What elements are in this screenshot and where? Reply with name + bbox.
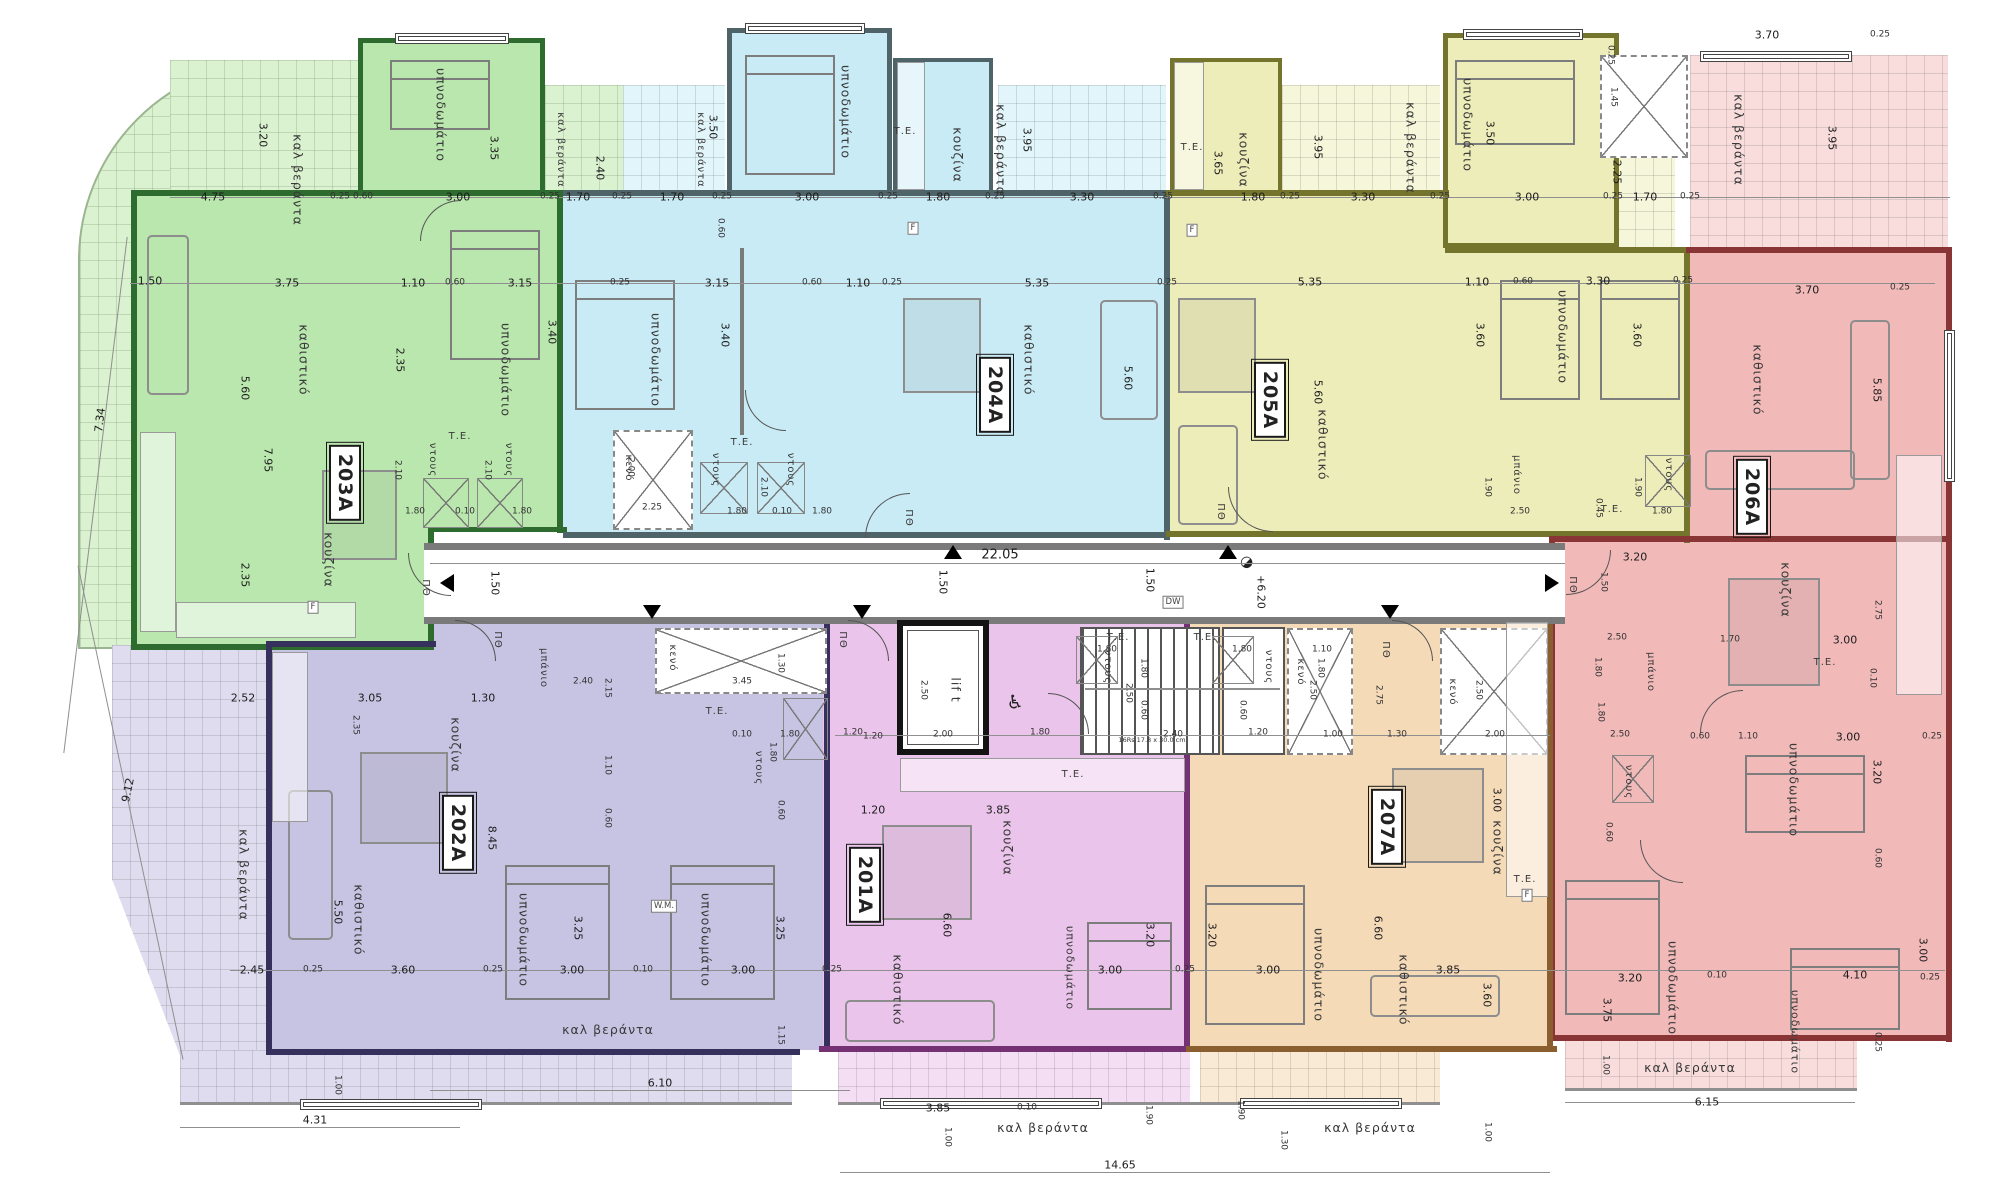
- dimension-label: 2.50: [1124, 683, 1133, 703]
- dimension-label: 0.25: [878, 193, 898, 202]
- room-label: Τ.Ε.: [894, 127, 917, 137]
- room-label: υπνοδωμάτιο: [1790, 990, 1801, 1074]
- dimension-label: 2.35: [240, 563, 251, 588]
- dimension-label: 2.50: [919, 680, 928, 700]
- dimension-label: 3.00: [1098, 965, 1123, 976]
- room-label: υπνοδωμάτιο: [1065, 926, 1076, 1010]
- arrow-down-icon: [1381, 605, 1399, 619]
- dimension-label: 0.60: [1513, 278, 1533, 287]
- dimension-label: 0.25: [882, 279, 902, 288]
- dimension-label: 2.75: [1374, 685, 1383, 705]
- dimension-label: 0.60: [603, 808, 612, 828]
- window: [880, 1098, 1102, 1109]
- dimension-label: 0.25: [1890, 284, 1910, 293]
- room-label: καθιστικό: [1397, 954, 1410, 1025]
- dimension-label: 1.10: [401, 278, 426, 289]
- dimension-label: 1.50: [490, 571, 501, 596]
- dimension-label: 3.00: [446, 192, 471, 203]
- dimension-label: 5.35: [1298, 277, 1323, 288]
- arrow-up-icon: [1219, 545, 1237, 559]
- dimension-label: 3.60: [1475, 323, 1486, 348]
- dimension-label: 1.30: [1387, 731, 1407, 740]
- dimension-label: 3.95: [1313, 135, 1324, 160]
- veranda-207a: [1200, 1050, 1440, 1105]
- dimension-label: 3.20: [1623, 552, 1648, 563]
- room-label: καλ βεράντα: [1732, 94, 1745, 186]
- dimension-label: 1.30: [1279, 1130, 1288, 1150]
- dimension-label: 2.45: [240, 965, 265, 976]
- sofa: [845, 1000, 995, 1042]
- dining-table: [882, 825, 972, 920]
- room-label: κουζίνα: [1779, 562, 1792, 618]
- veranda-201a: [838, 1050, 1190, 1105]
- room-label: καλ βεράντα: [237, 829, 250, 921]
- dimension-label: 0.60: [353, 193, 373, 202]
- kitchen-counter: [140, 432, 176, 632]
- room-label: ΠΘ: [1567, 576, 1577, 593]
- dimension-label: 2.00: [626, 457, 635, 477]
- dimension-label: 1.90: [1483, 477, 1492, 497]
- room-label: υπνοδωμάτιο: [1666, 941, 1679, 1035]
- dimension-label: 4.10: [1843, 970, 1868, 981]
- dimension-label: 0.60: [776, 800, 785, 820]
- room-label: Τ.Ε.: [1601, 505, 1624, 515]
- arrow-down-icon: [643, 605, 661, 619]
- dimension-label: 2.35: [395, 348, 406, 373]
- room-label: ντους: [1623, 765, 1633, 799]
- dimension-label: 1.30: [776, 653, 785, 673]
- dimension-label: 2.50: [1308, 680, 1317, 700]
- room-label: υπνοδωμάτιο: [1787, 743, 1800, 837]
- room-label: ντους: [785, 453, 795, 487]
- dimension-label: 3.30: [1586, 276, 1611, 287]
- dimension-label: 1.80: [1241, 192, 1266, 203]
- window: [745, 23, 865, 34]
- dimension-label: 3.70: [1755, 30, 1780, 41]
- bed: [1205, 885, 1305, 1025]
- dimension-label: 2.15: [603, 678, 612, 698]
- dimension-label: 2.00: [1485, 731, 1505, 740]
- bed: [1565, 880, 1660, 1015]
- dimension-label: 1.80: [780, 731, 800, 740]
- dimension-label: 2.40: [1163, 731, 1183, 740]
- dimension-label: 0.25: [1920, 974, 1940, 983]
- dimension-label: 1.10: [1312, 646, 1332, 655]
- dimension-label: 5.50: [333, 900, 344, 925]
- dimension-label: 1.80: [812, 508, 832, 517]
- dimension-label: 1.80: [1652, 508, 1672, 517]
- bed: [670, 865, 775, 1000]
- dimension-label: 1.80: [1030, 729, 1050, 738]
- dimension-label: 1.10: [1465, 277, 1490, 288]
- dimension-label: 1.00: [333, 1075, 342, 1095]
- veranda-206a-top: [1690, 55, 1948, 248]
- dimension-label: 0.25: [1873, 1032, 1882, 1052]
- dimension-label: 1.20: [863, 733, 883, 742]
- dimension-label: 1.10: [603, 755, 612, 775]
- room-label: ντους: [503, 443, 513, 477]
- fridge-mark: F: [1187, 224, 1198, 237]
- room-label: Τ.Ε.: [706, 707, 729, 717]
- unit-label-206a: 206A: [1736, 459, 1768, 535]
- room-label: καλ βεράντα: [562, 1024, 654, 1037]
- dimension-label: 3.00: [560, 965, 585, 976]
- dimension-label: 3.00: [1256, 965, 1281, 976]
- bed: [745, 55, 835, 175]
- room-label: ΠΘ: [492, 631, 502, 648]
- room-label: καθιστικό: [1316, 409, 1329, 480]
- dimension-label: 1.70: [1633, 192, 1658, 203]
- dimension-label: 3.85: [1436, 965, 1461, 976]
- dimension-label: 3.00: [1918, 938, 1929, 963]
- dimension-label: 1.80: [1232, 646, 1252, 655]
- dimension-label: 3.25: [775, 916, 786, 941]
- window: [1700, 51, 1852, 62]
- dimension-label: 3.20: [1872, 760, 1883, 785]
- room-label: καλ βεράντα: [291, 134, 304, 226]
- dimension-label: 1.20: [861, 805, 886, 816]
- dimension-label: 6.10: [648, 1078, 673, 1089]
- dimension-label: 0.10: [772, 508, 792, 517]
- sofa: [1100, 300, 1158, 420]
- kitchen-counter: [1174, 62, 1204, 190]
- dimension-label: 1.90: [1236, 1100, 1245, 1120]
- room-label: κουζίνα: [951, 127, 964, 183]
- dimension-label: 5.60: [1313, 380, 1324, 405]
- fridge-mark: F: [908, 222, 919, 235]
- dimension-label: 3.05: [358, 693, 383, 704]
- room-label: κενό: [667, 644, 677, 671]
- dimension-label: 0.10: [1868, 668, 1877, 688]
- room-label: ΠΘ: [420, 579, 430, 596]
- room-label: υπνοδωμάτιο: [839, 65, 852, 159]
- dimension-label: 0.45: [1594, 498, 1603, 518]
- dining-table: [1728, 578, 1820, 686]
- dimension-label: 2.25: [1612, 160, 1623, 185]
- dimension-label: 3.60: [1482, 983, 1493, 1008]
- dishwasher-mark: DW: [1163, 596, 1184, 609]
- dimension-label: 3.45: [732, 678, 752, 687]
- dimension-label: 1.00: [1601, 1055, 1610, 1075]
- dimension-label: 3.50: [1485, 121, 1496, 146]
- dimension-label: 3.00: [1492, 788, 1503, 813]
- dimension-label: 5.35: [1025, 278, 1050, 289]
- dimension-label: 2.50: [1474, 680, 1483, 700]
- room-label: καλ βεράντα: [1644, 1062, 1736, 1075]
- dimension-label: 3.25: [573, 916, 584, 941]
- dimension-label: 1.45: [1609, 87, 1618, 107]
- room-label: ντους: [427, 443, 437, 477]
- dimension-label: 5.85: [1872, 378, 1883, 403]
- dimension-label: 22.05: [981, 549, 1018, 562]
- dimension-label: 1.10: [1738, 733, 1758, 742]
- room-label: καλ βεράντα: [695, 112, 705, 188]
- dimension-label: 3.95: [1827, 126, 1838, 151]
- dimension-label: 2.40: [595, 156, 606, 181]
- dimension-label: 1.80: [405, 508, 425, 517]
- dimension-label: 3.20: [1207, 923, 1218, 948]
- dimension-label: 2.75: [1873, 600, 1882, 620]
- dimension-label: 0.25: [303, 966, 323, 975]
- dimension-label: 2.40: [573, 678, 593, 687]
- arrow-up-icon: [944, 545, 962, 559]
- dimension-label: 1.20: [1248, 729, 1268, 738]
- dimension-label: 4.75: [201, 192, 226, 203]
- window: [1463, 29, 1583, 40]
- dimension-label: 7.95: [263, 448, 274, 473]
- room-label: Τ.Ε.: [449, 432, 472, 442]
- dimension-label: 0.60: [1604, 822, 1613, 842]
- room-label: μπάνιο: [538, 648, 548, 688]
- room-label: κουζίνα: [449, 717, 462, 773]
- dimension-label: 1.30: [471, 693, 496, 704]
- unit-label-207a: 207A: [1371, 789, 1403, 865]
- unit-label-205a: 205A: [1254, 362, 1286, 438]
- room-label: υπνοδωμάτιο: [1312, 928, 1325, 1022]
- dimension-label: 3.00: [1833, 635, 1858, 646]
- dimension-label: 1.70: [1720, 636, 1740, 645]
- unit-label-202a: 202A: [442, 795, 474, 871]
- dimension-label: 1.00: [943, 1127, 952, 1147]
- room-label: καθιστικό: [1022, 324, 1035, 395]
- dimension-label: 3.40: [720, 323, 731, 348]
- dimension-label: 1.50: [138, 276, 163, 287]
- shower-tray: [423, 478, 469, 528]
- dimension-label: 0.25: [1603, 193, 1623, 202]
- dimension-label: 2.35: [351, 715, 360, 735]
- room-label: μπάνιο: [1511, 455, 1521, 495]
- dimension-label: 0.60: [1873, 848, 1882, 868]
- dimension-label: 0.60: [716, 218, 725, 238]
- dimension-label: 0.25: [540, 193, 560, 202]
- dimension-label: 3.95: [1022, 128, 1033, 153]
- bed: [450, 230, 540, 360]
- dimension-label: 0.60: [802, 279, 822, 288]
- dimension-label: 0.60: [445, 279, 465, 288]
- dimension-label: 3.35: [489, 136, 500, 161]
- dimension-label: 2.10: [393, 460, 402, 480]
- fridge-mark: F: [308, 601, 319, 614]
- dimension-label: 2.00: [933, 731, 953, 740]
- room-label: καθιστικό: [891, 954, 904, 1025]
- sofa: [147, 235, 189, 395]
- dimension-label: 1.90: [1144, 1105, 1153, 1125]
- dimension-label: 0.25: [1153, 193, 1173, 202]
- dimension-label: 0.25: [985, 193, 1005, 202]
- dimension-label: 1.50: [1599, 572, 1608, 592]
- dimension-label: +6.20: [1256, 575, 1267, 609]
- room-label: κουζίνα: [1237, 132, 1250, 188]
- dimension-label: 1.80: [512, 508, 532, 517]
- dimension-label: 0.25: [1870, 31, 1890, 40]
- dimension-label: 0.25: [712, 193, 732, 202]
- dimension-label: 0.10: [455, 508, 475, 517]
- floor-plan: ♿ ◑: [0, 0, 2000, 1179]
- dimension-label: 3.20: [258, 123, 269, 148]
- room-label: καλ βεράντα: [994, 104, 1007, 196]
- dimension-label: 3.30: [1351, 192, 1376, 203]
- washing-machine-mark: W.M.: [651, 900, 677, 913]
- dimension-label: 6.60: [942, 913, 953, 938]
- dimension-label: 3.00: [795, 192, 820, 203]
- dimension-label: 1.80: [1593, 657, 1602, 677]
- room-label: κουζίνα: [322, 532, 335, 588]
- room-label: υπνοδωμάτιο: [434, 68, 447, 162]
- room-label: ΠΘ: [1215, 503, 1225, 520]
- dimension-label: 1.50: [938, 570, 949, 595]
- room-label: ΠΘ: [1380, 641, 1390, 658]
- room-label: ΠΘ: [837, 631, 847, 648]
- dimension-label: 0.25: [822, 966, 842, 975]
- dimension-label: 1.15: [776, 1025, 785, 1045]
- room-label: υπνοδωμάτιο: [517, 893, 530, 987]
- dimension-label: 3.60: [391, 965, 416, 976]
- dimension-label: 3.15: [705, 278, 730, 289]
- dimension-label: 3.50: [708, 115, 719, 140]
- dimension-label: 0.10: [732, 731, 752, 740]
- dimension-label: 5.60: [240, 376, 251, 401]
- dimension-label: 3.75: [275, 278, 300, 289]
- room-label: μπάνιο: [1645, 652, 1655, 692]
- dimension-label: 3.60: [1632, 323, 1643, 348]
- dining-table: [903, 298, 981, 393]
- room-label: καθιστικό: [1751, 344, 1764, 415]
- room-label: Τ.Ε.: [1062, 770, 1085, 780]
- dimension-label: 2.52: [231, 693, 256, 704]
- room-label: υπνοδωμάτιο: [699, 893, 712, 987]
- dimension-label: 2.25: [642, 504, 662, 513]
- dimension-label: 0.25: [1673, 277, 1693, 286]
- dimension-label: 2.50: [1607, 634, 1627, 643]
- room-label: Τ.Ε.: [1814, 658, 1837, 668]
- dimension-label: 0.25: [1680, 193, 1700, 202]
- window: [1944, 330, 1955, 482]
- room-label: κουζίνα: [1491, 820, 1504, 876]
- dimension-label: 1.80: [1596, 702, 1605, 722]
- room-label: Τ.Ε.: [1194, 633, 1217, 643]
- dimension-label: 7.34: [93, 407, 107, 433]
- dimension-label: 0.25: [612, 193, 632, 202]
- kitchen-counter: [1506, 622, 1548, 897]
- window: [300, 1099, 482, 1110]
- dimension-label: 0.25: [1606, 45, 1615, 65]
- room-label: καλ βεράντα: [1404, 102, 1417, 194]
- room-label: Τ.Ε.: [731, 438, 754, 448]
- dimension-label: 1.80: [1316, 658, 1325, 678]
- dimension-label: 3.70: [1795, 285, 1820, 296]
- shower-tray: [1212, 636, 1254, 684]
- room-label: ΠΘ: [903, 509, 913, 526]
- dimension-label: 3.20: [1618, 973, 1643, 984]
- kitchen-counter: [272, 652, 308, 822]
- fridge-mark: F: [1522, 889, 1533, 902]
- kitchen-counter: [176, 602, 356, 638]
- room-label: καθιστικό: [352, 884, 365, 955]
- room-label: ντους: [710, 453, 720, 487]
- kitchen-counter: [900, 758, 1185, 792]
- dimension-label: 1.00: [1323, 731, 1343, 740]
- dimension-label: 1.80: [1097, 646, 1117, 655]
- dimension-label: 2.10: [483, 460, 492, 480]
- dimension-label: 2.50: [1610, 731, 1630, 740]
- dimension-label: 6.15: [1695, 1097, 1720, 1108]
- shower-tray: [477, 478, 523, 528]
- room-label: καλ βεράντα: [1324, 1122, 1416, 1135]
- dimension-label: 6.60: [1373, 916, 1384, 941]
- dimension-label: 1.10: [846, 278, 871, 289]
- room-label: Τ.Ε.: [1181, 143, 1204, 153]
- room-label: Τ.Ε.: [1107, 633, 1130, 643]
- arrow-down-icon: [853, 605, 871, 619]
- dimension-label: 2.10: [759, 477, 768, 497]
- dimension-label: 0.25: [330, 193, 350, 202]
- room-label: ντους: [1263, 650, 1273, 684]
- room-label: υπνοδωμάτιο: [1556, 290, 1569, 384]
- bed: [1790, 948, 1900, 1030]
- dimension-label: 3.20: [1145, 923, 1156, 948]
- room-label: υπνοδωμάτιο: [1461, 78, 1474, 172]
- room-label: κενό: [1447, 678, 1457, 705]
- dimension-label: 1.90: [1633, 477, 1642, 497]
- dimension-label: 0.25: [1280, 193, 1300, 202]
- dimension-label: 14.65: [1104, 1160, 1136, 1171]
- room-label: καλ βεράντα: [555, 112, 565, 188]
- dimension-label: 3.15: [508, 278, 533, 289]
- room-label: υπνοδωμάτιο: [649, 313, 662, 407]
- veranda-204a-small: [623, 85, 725, 195]
- room-label: ντους: [1663, 458, 1673, 492]
- unit-label-201a: 201A: [849, 847, 881, 923]
- dimension-label: 1.80: [1139, 658, 1148, 678]
- dimension-label: 3.75: [1602, 998, 1613, 1023]
- wheelchair-icon: ♿: [1006, 694, 1023, 713]
- dimension-label: 0.10: [633, 966, 653, 975]
- dimension-label: 1.50: [1145, 568, 1156, 593]
- dimension-label: 3.40: [547, 320, 558, 345]
- room-label: Τ.Ε.: [1514, 875, 1537, 885]
- sofa: [1705, 450, 1855, 490]
- dimension-label: 3.30: [1070, 192, 1095, 203]
- dimension-label: 3.00: [1515, 192, 1540, 203]
- dimension-label: 3.00: [1836, 732, 1861, 743]
- dimension-label: 0.10: [1017, 1104, 1037, 1113]
- room-label: κενό: [1295, 658, 1305, 685]
- dimension-label: 3.85: [986, 805, 1011, 816]
- bed: [1745, 755, 1865, 833]
- dimension-label: 0.25: [610, 279, 630, 288]
- dimension-label: 2.50: [1510, 508, 1530, 517]
- dimension-label: 1.80: [926, 192, 951, 203]
- room-label: καλ βεράντα: [997, 1122, 1089, 1135]
- room-label: κουζίνα: [1001, 820, 1014, 876]
- unit-label-204a: 204A: [979, 357, 1011, 433]
- dimension-label: 3.85: [926, 1103, 951, 1114]
- dining-table: [360, 752, 448, 844]
- sofa: [1178, 425, 1238, 525]
- dimension-label: 5.60: [1123, 366, 1134, 391]
- dimension-label: 3.65: [1213, 151, 1224, 176]
- room-label: καθιστικό: [297, 324, 310, 395]
- room-label: υπνοδωμάτιο: [499, 323, 512, 417]
- arrow-right-icon: [1545, 574, 1559, 592]
- dimension-label: 1.20: [843, 729, 863, 738]
- window: [395, 33, 509, 44]
- dimension-label: 1.00: [1483, 1122, 1492, 1142]
- dimension-label: 1.80: [727, 508, 747, 517]
- dimension-label: 4.31: [303, 1115, 328, 1126]
- room-label: ντους: [1102, 650, 1112, 684]
- dimension-label: 1.70: [566, 192, 591, 203]
